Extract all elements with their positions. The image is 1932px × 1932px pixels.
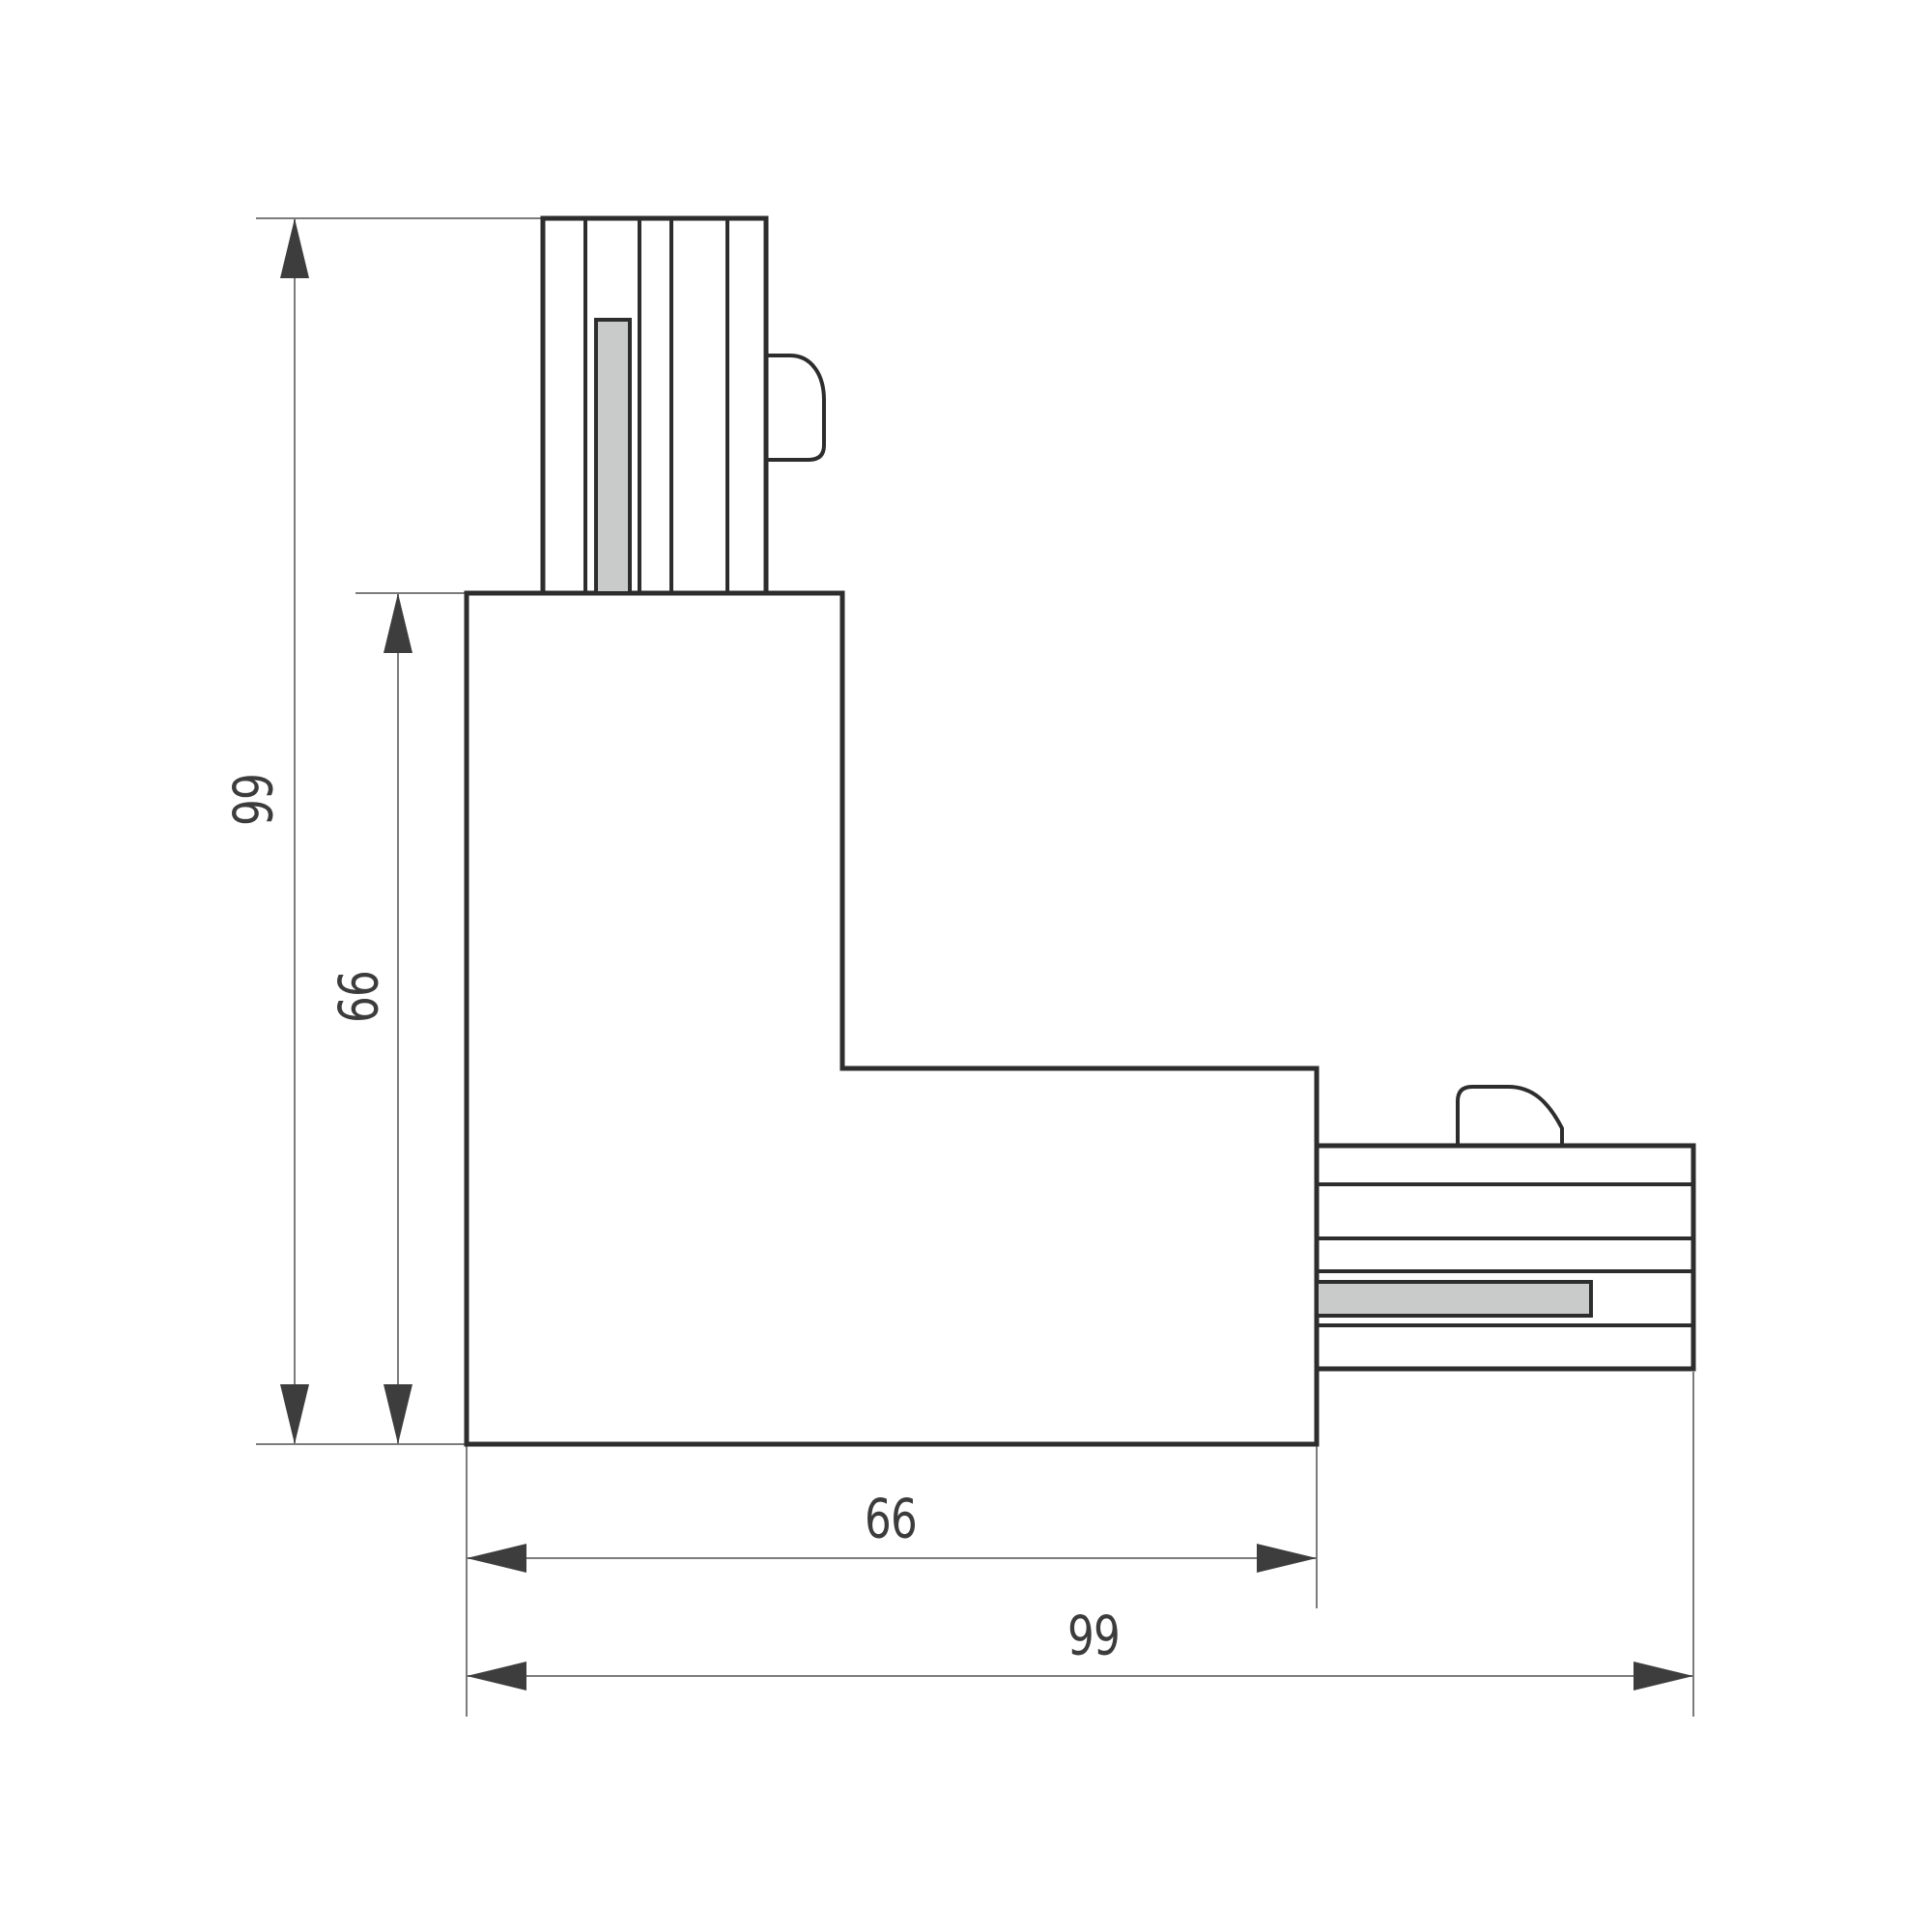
top-connector [543, 218, 824, 593]
dimension-bottom-body: 66 [467, 1489, 1317, 1574]
drawing-canvas: 99 66 66 99 [0, 0, 1932, 1932]
right-connector-latch [1458, 1087, 1562, 1146]
l-body-outline [467, 593, 1317, 1444]
arrow-up-icon [280, 218, 309, 278]
drawing-page: 99 66 66 99 [0, 0, 1932, 1932]
dimension-left-total: 99 [223, 218, 310, 1444]
arrow-left-icon [467, 1544, 526, 1573]
arrow-right-icon [1257, 1544, 1317, 1573]
top-connector-outline [543, 218, 766, 593]
dimension-bottom-total: 99 [467, 1605, 1693, 1691]
right-connector-outline [1317, 1146, 1693, 1369]
arrow-down-icon [280, 1384, 309, 1444]
dimension-label-bottom-body: 66 [865, 1489, 917, 1551]
arrow-right-icon [1634, 1662, 1693, 1690]
top-connector-latch [766, 355, 824, 460]
dimension-label-left-total: 99 [223, 774, 286, 826]
dimension-label-left-body: 66 [328, 971, 391, 1023]
arrow-up-icon [384, 593, 412, 653]
dimension-label-bottom-total: 99 [1067, 1605, 1120, 1668]
dimension-left-body: 66 [328, 593, 413, 1444]
arrow-left-icon [467, 1662, 526, 1690]
arrow-down-icon [384, 1384, 412, 1444]
right-connector [1317, 1087, 1693, 1369]
top-connector-contact-strip [596, 320, 630, 593]
right-connector-contact-strip [1317, 1282, 1591, 1316]
